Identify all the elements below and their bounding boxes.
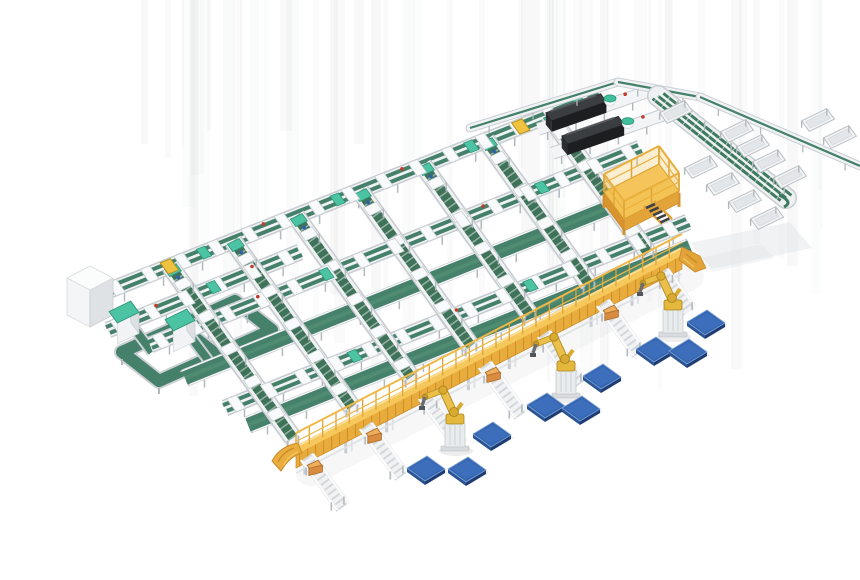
facility-3d-render xyxy=(0,0,860,580)
blue-pallet xyxy=(473,422,514,451)
blue-pallet xyxy=(687,310,728,339)
blue-pallet xyxy=(407,456,448,485)
blue-pallet xyxy=(669,339,710,368)
output-tray xyxy=(824,126,857,149)
infeed-box xyxy=(67,266,113,327)
facility-render-figure xyxy=(0,0,860,580)
blue-pallet xyxy=(448,457,489,486)
